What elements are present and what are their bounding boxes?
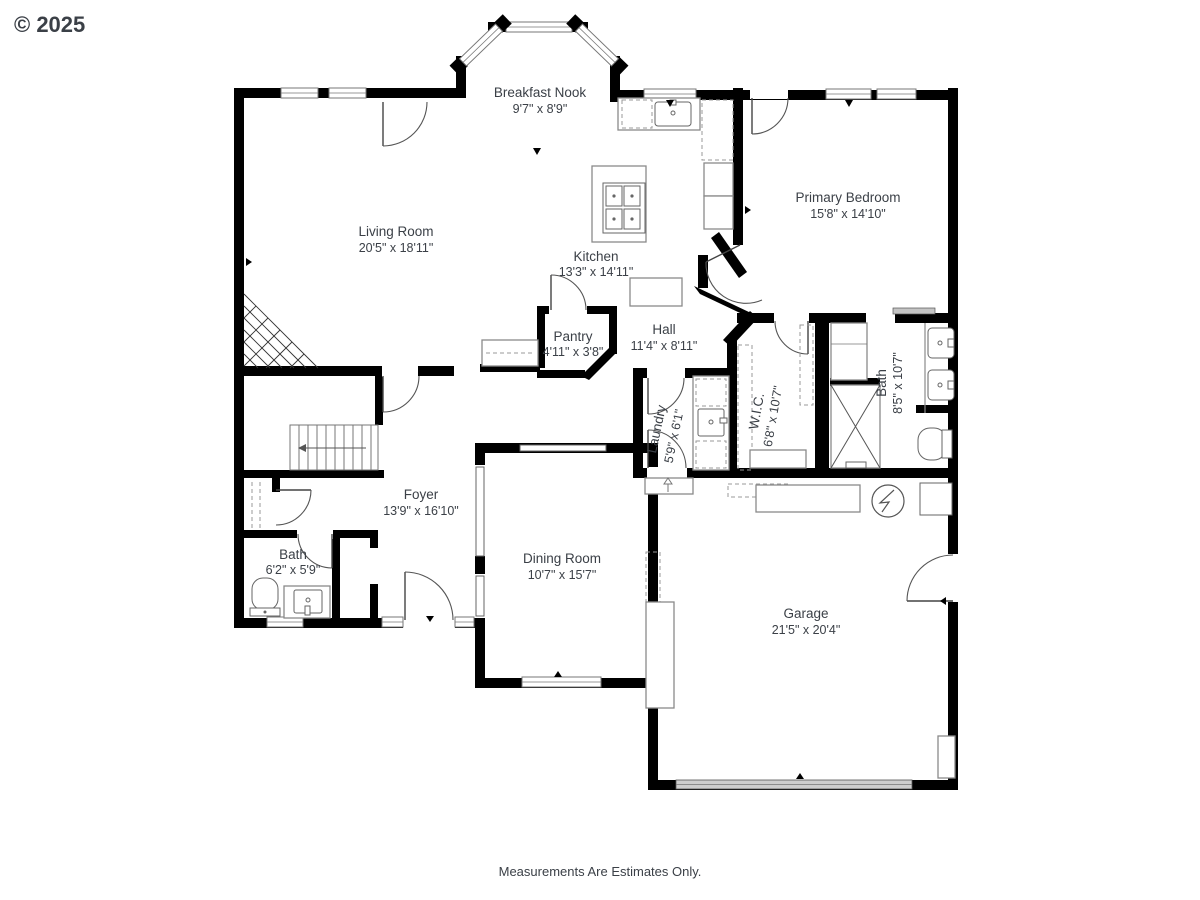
closet-shelf [800,325,813,405]
room-dims-primary-bath: 8'5" x 10'7" [891,352,905,414]
bathtub [831,323,867,380]
garage-step [645,478,693,494]
toilet [918,428,952,460]
toilet [250,578,280,616]
room-label-living-room: Living Room [358,224,433,239]
kitchen-island [592,166,646,242]
floor-plan: Breakfast Nook 9'7" x 8'9" Living Room 2… [0,0,1200,900]
room-dims-dining-room: 10'7" x 15'7" [528,568,597,582]
room-dims-hall: 11'4" x 8'11" [631,339,698,353]
shower [831,385,880,468]
vanity-sink [928,328,954,358]
room-dims-kitchen: 13'3" x 14'11" [559,265,634,279]
floor-plan-page: Breakfast Nook 9'7" x 8'9" Living Room 2… [0,0,1200,900]
room-dims-foyer: 13'9" x 16'10" [383,504,459,518]
pantry-counter [482,340,538,366]
room-dims-primary-bedroom: 15'8" x 14'10" [810,207,886,221]
stairs [290,425,378,470]
room-label-primary-bath: Bath [874,369,889,397]
laundry-fixtures [693,376,729,470]
room-label-primary-bedroom: Primary Bedroom [795,190,900,205]
storage-shelf [646,602,674,708]
room-label-dining-room: Dining Room [523,551,601,566]
room-dims-pantry: 4'11" x 3'8" [543,345,604,359]
room-dims-garage: 21'5" x 20'4" [772,623,841,637]
room-label-hall: Hall [652,322,675,337]
room-label-foyer-bath: Bath [279,547,307,562]
closet-shelf [750,450,806,468]
furnace [920,483,952,515]
room-label-breakfast-nook: Breakfast Nook [494,85,587,100]
laundry-sink [698,409,727,436]
copyright-watermark: © 2025 [14,12,85,37]
kitchen-fixtures [482,98,733,366]
room-dims-living-room: 20'5" x 18'11" [359,241,434,255]
refrigerator [702,100,733,160]
room-dims-breakfast-nook: 9'7" x 8'9" [513,102,568,116]
disclaimer-text: Measurements Are Estimates Only. [499,864,702,879]
vanity-sink [284,586,330,618]
post [938,736,955,778]
kitchen-sink [655,100,691,126]
room-dims-foyer-bath: 6'2" x 5'9" [266,563,321,577]
room-labels: Breakfast Nook 9'7" x 8'9" Living Room 2… [266,85,905,637]
bay-window-left [450,14,512,75]
room-label-pantry: Pantry [553,329,592,344]
bay-window-right [566,14,628,75]
stair-hatch [244,294,318,368]
vanity-sink [928,370,954,400]
workbench [756,485,860,512]
room-label-foyer: Foyer [404,487,439,502]
room-label-garage: Garage [783,606,828,621]
room-label-kitchen: Kitchen [573,249,618,264]
cooktop [603,183,645,233]
water-heater [872,485,904,517]
pocket-door [893,308,935,314]
